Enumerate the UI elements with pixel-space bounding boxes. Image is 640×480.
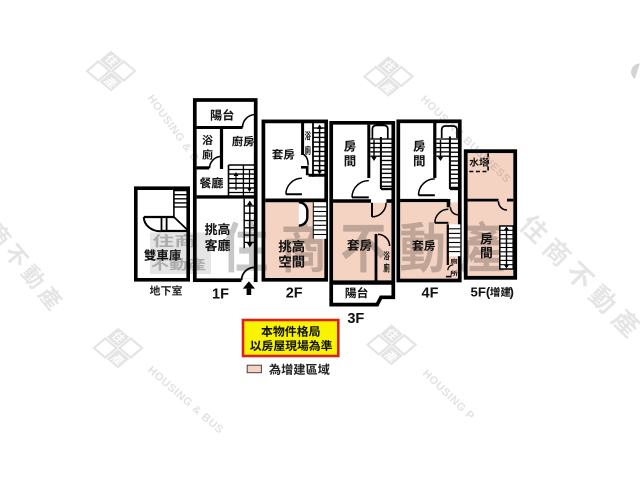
svg-text:1F: 1F (212, 286, 229, 302)
svg-text:4F: 4F (422, 286, 439, 302)
svg-text:3F: 3F (347, 311, 364, 327)
svg-text:): ) (510, 285, 514, 300)
svg-text:5F(: 5F( (471, 285, 491, 300)
svg-text:2F: 2F (286, 286, 303, 302)
